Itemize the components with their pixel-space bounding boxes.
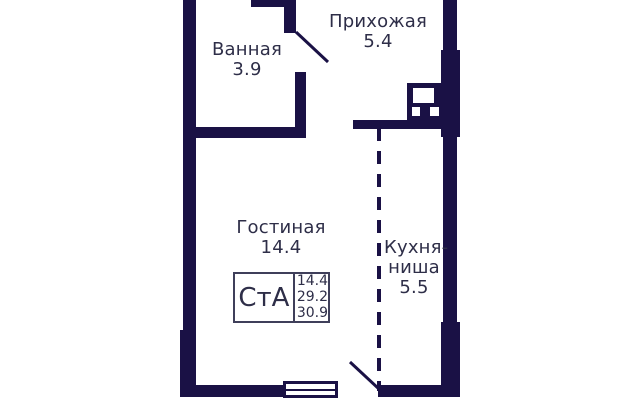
stamp-area-value: 29.2 — [297, 290, 328, 305]
room-name: Кухня- — [384, 238, 444, 258]
room-label-living-room: Гостиная 14.4 — [226, 218, 336, 258]
balcony-door-swing-line — [350, 362, 379, 389]
room-label-hallway: Прихожая 5.4 — [323, 12, 433, 52]
plan-lines-overlay — [0, 0, 640, 400]
room-area: 3.9 — [192, 60, 302, 80]
room-area: 5.4 — [323, 32, 433, 52]
stamp-area-value: 30.9 — [297, 306, 328, 321]
room-name: ниша — [384, 258, 444, 278]
room-label-kitchen-niche: Кухня- ниша 5.5 — [384, 238, 444, 298]
room-name: Прихожая — [323, 12, 433, 32]
room-name: Гостиная — [226, 218, 336, 238]
apartment-stamp: СтА 14.4 29.2 30.9 — [233, 272, 330, 323]
room-label-bathroom: Ванная 3.9 — [192, 40, 302, 80]
apartment-areas: 14.4 29.2 30.9 — [293, 274, 328, 321]
room-area: 5.5 — [384, 278, 444, 298]
room-area: 14.4 — [226, 238, 336, 258]
apartment-type-label: СтА — [235, 274, 293, 321]
stamp-area-value: 14.4 — [297, 274, 328, 289]
room-name: Ванная — [192, 40, 302, 60]
floor-plan: Прихожая 5.4 Ванная 3.9 Гостиная 14.4 Ку… — [0, 0, 640, 400]
